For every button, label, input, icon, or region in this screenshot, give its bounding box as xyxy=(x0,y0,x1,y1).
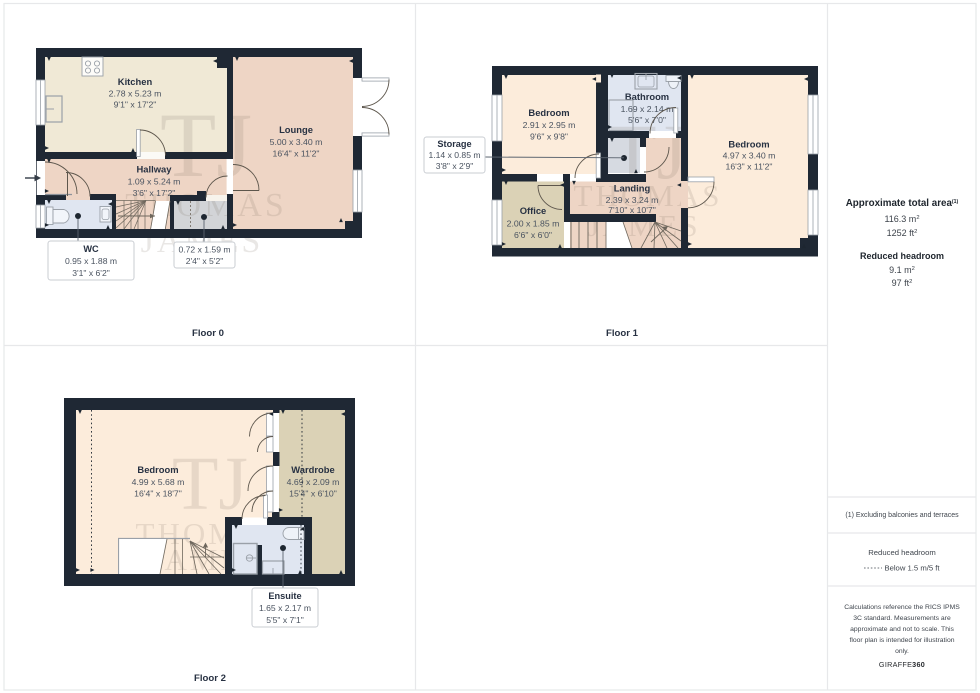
svg-text:only.: only. xyxy=(895,648,909,655)
svg-text:Reduced headroom: Reduced headroom xyxy=(868,548,936,557)
svg-text:2'4" x 5'2": 2'4" x 5'2" xyxy=(186,256,224,266)
svg-text:Floor 1: Floor 1 xyxy=(606,328,639,339)
svg-text:Floor 2: Floor 2 xyxy=(194,673,226,684)
svg-text:2.00 x 1.85 m: 2.00 x 1.85 m xyxy=(507,219,560,229)
svg-text:4.69 x 2.09 m: 4.69 x 2.09 m xyxy=(287,477,340,487)
svg-text:Floor 0: Floor 0 xyxy=(192,328,224,339)
svg-text:1252 ft2: 1252 ft2 xyxy=(887,228,918,238)
svg-text:1.69 x 2.14 m: 1.69 x 2.14 m xyxy=(621,104,674,114)
svg-text:3C standard. Measurements are: 3C standard. Measurements are xyxy=(853,615,951,622)
svg-text:(1) Excluding balconies and te: (1) Excluding balconies and terraces xyxy=(845,512,959,519)
svg-text:Kitchen: Kitchen xyxy=(118,76,153,87)
svg-text:Lounge: Lounge xyxy=(279,124,313,135)
svg-text:Approximate total area(1): Approximate total area(1) xyxy=(846,198,959,209)
svg-text:5'5" x 7'1": 5'5" x 7'1" xyxy=(266,615,304,625)
svg-text:approximate and not to scale.: approximate and not to scale. This xyxy=(850,626,954,633)
svg-text:Ensuite: Ensuite xyxy=(268,591,301,601)
svg-text:3'1" x 6'2": 3'1" x 6'2" xyxy=(72,268,110,278)
svg-text:116.3 m2: 116.3 m2 xyxy=(884,214,919,224)
svg-text:2.78 x 5.23 m: 2.78 x 5.23 m xyxy=(109,89,162,99)
svg-text:1.14 x 0.85 m: 1.14 x 0.85 m xyxy=(428,150,480,160)
svg-text:Bedroom: Bedroom xyxy=(528,107,569,118)
svg-text:Wardrobe: Wardrobe xyxy=(291,464,334,475)
svg-text:0.95 x 1.88 m: 0.95 x 1.88 m xyxy=(65,256,117,266)
svg-text:1.65 x 2.17 m: 1.65 x 2.17 m xyxy=(259,603,311,613)
svg-text:TJ: TJ xyxy=(160,94,252,196)
svg-text:4.97 x 3.40 m: 4.97 x 3.40 m xyxy=(723,151,776,161)
svg-text:5'6" x 7'0": 5'6" x 7'0" xyxy=(628,115,666,125)
svg-text:Reduced headroom: Reduced headroom xyxy=(860,251,944,261)
svg-text:Bedroom: Bedroom xyxy=(728,139,769,150)
svg-text:6'6" x 6'0": 6'6" x 6'0" xyxy=(514,230,552,240)
svg-text:5.00 x 3.40 m: 5.00 x 3.40 m xyxy=(270,137,323,147)
svg-text:TJ: TJ xyxy=(172,442,248,526)
svg-text:0.72 x 1.59 m: 0.72 x 1.59 m xyxy=(178,245,230,255)
svg-text:floor plan is intended for ill: floor plan is intended for illustration xyxy=(849,637,954,644)
svg-text:Storage: Storage xyxy=(437,139,471,149)
svg-text:3'8" x 2'9": 3'8" x 2'9" xyxy=(436,161,474,171)
svg-text:WC: WC xyxy=(83,244,99,254)
svg-text:Office: Office xyxy=(520,205,547,216)
svg-text:9'6" x 9'8": 9'6" x 9'8" xyxy=(530,132,568,142)
svg-text:16'4" x 11'2": 16'4" x 11'2" xyxy=(273,149,320,159)
svg-text:Below 1.5 m/5 ft: Below 1.5 m/5 ft xyxy=(884,564,940,573)
svg-text:2.91 x 2.95 m: 2.91 x 2.95 m xyxy=(523,120,576,130)
svg-text:9'1" x 17'2": 9'1" x 17'2" xyxy=(114,100,157,110)
svg-text:Calculations reference the RIC: Calculations reference the RICS IPMS xyxy=(844,604,960,611)
svg-text:9.1 m2: 9.1 m2 xyxy=(889,265,915,275)
svg-text:16'3" x 11'2": 16'3" x 11'2" xyxy=(726,162,773,172)
svg-text:15'4" x 6'10": 15'4" x 6'10" xyxy=(289,489,337,499)
svg-text:GIRAFFE360: GIRAFFE360 xyxy=(879,660,925,669)
